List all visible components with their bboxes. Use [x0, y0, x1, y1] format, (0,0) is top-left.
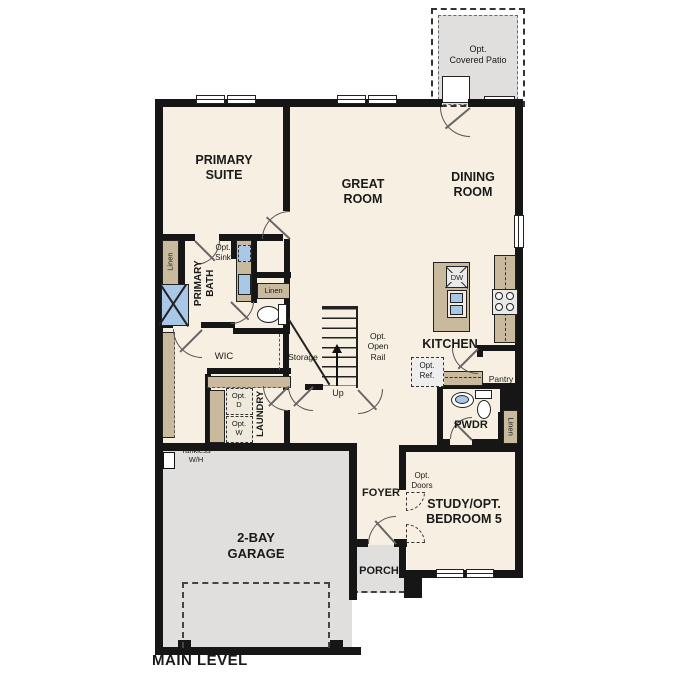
island-sink: [447, 290, 467, 318]
bath-toilet-tank-icon: [278, 304, 287, 325]
opt-sink-label: Opt. Sink: [210, 243, 236, 263]
laundry-side-cabinet: [209, 390, 225, 443]
wall-front-left: [352, 539, 368, 547]
wic-hall-dashed-line: [279, 334, 280, 370]
optional-washer-box: Opt. W: [226, 416, 253, 443]
wall-study-top: [399, 445, 523, 452]
garage-door-outline: [182, 582, 330, 648]
wall-linen-right: [179, 239, 185, 288]
wall-toilet-nook-bottom: [233, 328, 290, 334]
pantry-black-block: [500, 389, 523, 412]
kitchen-label: KITCHEN: [420, 337, 480, 352]
porch-label: PORCH: [355, 565, 403, 578]
opt-doors-label: Opt. Doors: [402, 471, 442, 491]
stair-rail-top: [322, 306, 358, 308]
cooktop-icon: [492, 289, 518, 315]
island-sink-basin-1: [450, 293, 463, 303]
floor-plan: Opt. Covered Patio: [0, 0, 687, 687]
optional-fridge-label: Opt. Ref.: [414, 361, 440, 381]
optional-dryer-label: Opt. D: [228, 391, 250, 409]
up-arrow-stem: [336, 352, 338, 386]
pwdr-sink-icon: [451, 392, 474, 408]
window-great-2: [368, 95, 397, 104]
wic-shelf-left: [162, 332, 175, 438]
pwdr-label: PWDR: [446, 419, 496, 432]
window-suite-2: [227, 95, 256, 104]
window-study-1: [436, 569, 464, 578]
dishwasher-icon: DW: [446, 266, 468, 288]
up-label: Up: [326, 388, 350, 399]
laundry-label: LAUNDRY: [255, 384, 267, 444]
counter-dashed-line-2: [445, 377, 481, 378]
wall-pantry-top: [479, 345, 523, 351]
optional-sink-icon: [238, 245, 251, 262]
opt-open-rail-label: Opt. Open Rail: [358, 331, 398, 362]
burner-4: [506, 303, 514, 311]
wic-label: WIC: [204, 351, 244, 363]
study-label: STUDY/OPT. BEDROOM 5: [414, 497, 514, 528]
main-level-label: MAIN LEVEL: [152, 652, 272, 670]
patio-label: Opt. Covered Patio: [437, 44, 519, 66]
island-sink-basin-2: [450, 305, 463, 315]
wall-suite-divider: [283, 99, 290, 211]
garage-door-jamb-right: [330, 640, 343, 648]
wall-right: [515, 99, 523, 578]
burner-3: [495, 303, 503, 311]
linen-hall-label: Linen: [506, 410, 515, 444]
shower-x-line-1: [161, 285, 189, 327]
optional-washer-label: Opt. W: [228, 419, 250, 437]
foyer-label: FOYER: [357, 487, 405, 500]
patio-door-panel: [442, 76, 470, 103]
up-arrow-icon: [332, 344, 342, 353]
primary-suite-label: PRIMARY SUITE: [184, 153, 264, 184]
linen-bath-label: Linen: [258, 286, 289, 295]
dishwasher-label: DW: [448, 273, 466, 282]
bath-toilet-bowl-icon: [257, 306, 280, 323]
optional-dryer-box: Opt. D: [226, 388, 253, 415]
porch-corner-block: [404, 578, 422, 598]
tankless-wh-label: Tankless W/H: [174, 446, 218, 464]
window-dining-right: [514, 215, 524, 248]
bath-sink-icon: [238, 274, 251, 295]
pwdr-sink-basin: [455, 395, 469, 404]
pantry-label: Pantry: [481, 374, 521, 384]
garage-label: 2-BAY GARAGE: [216, 530, 296, 562]
wall-pwdr-left: [437, 383, 443, 445]
pwdr-toilet-tank-icon: [475, 390, 492, 399]
dining-room-label: DINING ROOM: [438, 170, 508, 201]
window-great-1: [337, 95, 366, 104]
pwdr-toilet-bowl-icon: [477, 400, 491, 419]
shower: [161, 284, 189, 326]
storage-label: Storage: [282, 352, 324, 362]
great-room-label: GREAT ROOM: [328, 177, 398, 208]
burner-1: [495, 292, 503, 300]
wall-wic-top-2: [201, 322, 235, 328]
window-suite-1: [196, 95, 225, 104]
linen-left-label: Linen: [165, 242, 174, 282]
burner-2: [506, 292, 514, 300]
optional-fridge-box: Opt. Ref.: [411, 357, 444, 387]
window-study-2: [466, 569, 494, 578]
wall-laundry-right: [284, 410, 290, 445]
